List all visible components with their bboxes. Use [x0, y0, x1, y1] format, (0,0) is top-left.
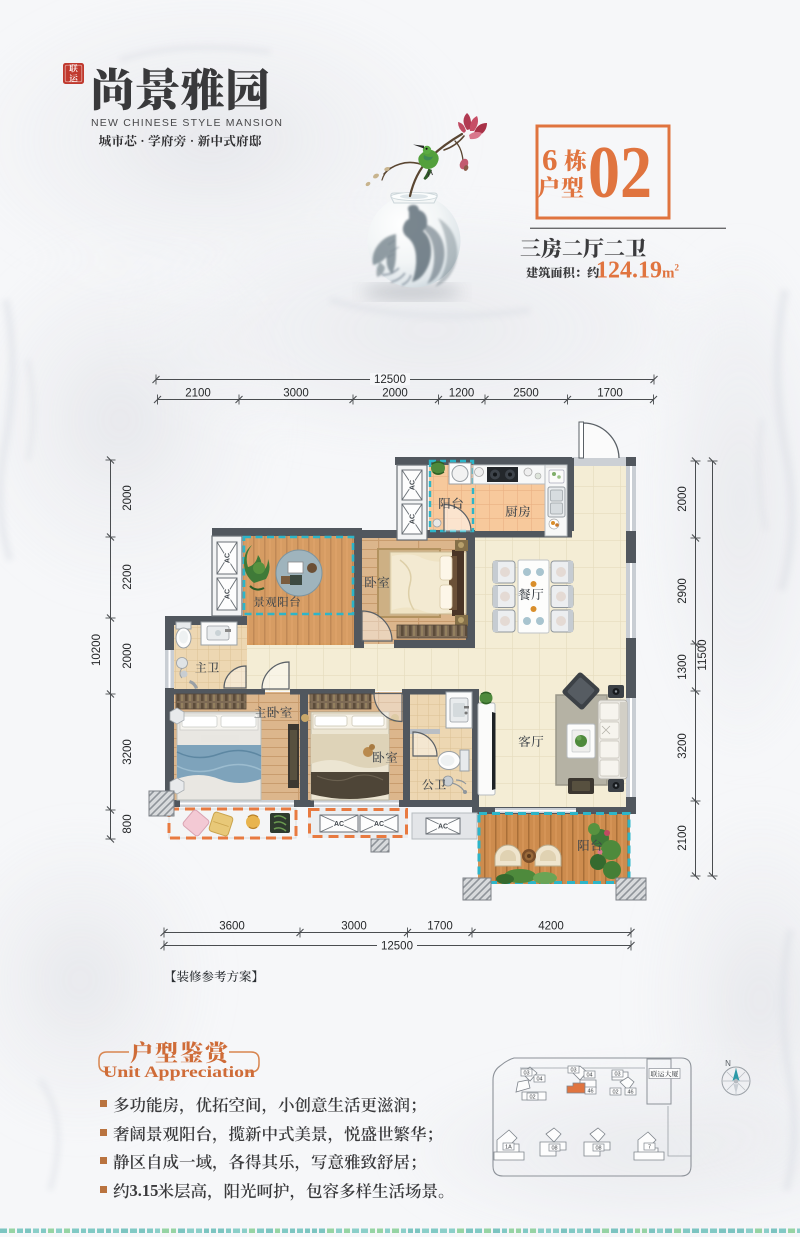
svg-text:3200: 3200: [122, 739, 134, 765]
svg-text:3200: 3200: [677, 733, 689, 759]
svg-text:2900: 2900: [677, 578, 689, 604]
svg-text:Unit Appreciation: Unit Appreciation: [103, 1064, 255, 1081]
svg-text:2200: 2200: [122, 564, 134, 590]
svg-text:NEW CHINESE STYLE MANSION: NEW CHINESE STYLE MANSION: [91, 117, 283, 129]
svg-text:1700: 1700: [427, 921, 453, 933]
svg-text:2500: 2500: [513, 388, 539, 400]
svg-text:3600: 3600: [219, 921, 245, 933]
svg-text:AC: AC: [410, 480, 417, 490]
svg-text:4200: 4200: [538, 921, 564, 933]
svg-text:08: 08: [551, 1146, 557, 1152]
svg-text:02: 02: [529, 1095, 535, 1101]
svg-text:46: 46: [627, 1090, 633, 1096]
svg-text:AC: AC: [374, 821, 384, 828]
svg-text:11500: 11500: [697, 639, 709, 670]
svg-text:04: 04: [586, 1073, 592, 1079]
svg-text:N: N: [725, 1059, 731, 1068]
svg-text:2000: 2000: [122, 485, 134, 511]
svg-text:04: 04: [536, 1077, 542, 1083]
svg-text:03: 03: [614, 1072, 620, 1078]
svg-text:6: 6: [542, 142, 558, 177]
svg-text:10200: 10200: [91, 634, 103, 666]
svg-text:2100: 2100: [677, 825, 689, 851]
svg-text:08: 08: [595, 1146, 601, 1152]
svg-text:46: 46: [587, 1089, 593, 1095]
svg-text:3.15: 3.15: [130, 1181, 159, 1200]
svg-text:800: 800: [122, 814, 134, 833]
svg-text:12500: 12500: [374, 374, 406, 386]
svg-text:2000: 2000: [122, 643, 134, 669]
svg-text:AC: AC: [410, 514, 417, 524]
svg-text:AC: AC: [225, 589, 232, 599]
svg-text:02: 02: [588, 132, 652, 214]
svg-text:1200: 1200: [449, 388, 475, 400]
svg-text:AC: AC: [334, 821, 344, 828]
svg-text:3000: 3000: [283, 388, 309, 400]
svg-text:2000: 2000: [677, 486, 689, 512]
svg-text:1300: 1300: [677, 654, 689, 680]
svg-text:2100: 2100: [185, 388, 211, 400]
svg-text:12500: 12500: [381, 941, 413, 953]
svg-text:3000: 3000: [341, 921, 367, 933]
svg-text:03: 03: [523, 1071, 529, 1077]
svg-text:1700: 1700: [597, 388, 623, 400]
svg-text:1A: 1A: [505, 1145, 512, 1151]
svg-text:AC: AC: [438, 824, 448, 831]
svg-text:03: 03: [570, 1068, 576, 1074]
svg-text:02: 02: [612, 1090, 618, 1096]
svg-text:7: 7: [648, 1145, 651, 1151]
svg-text:AC: AC: [225, 553, 232, 563]
svg-text:2000: 2000: [382, 388, 408, 400]
